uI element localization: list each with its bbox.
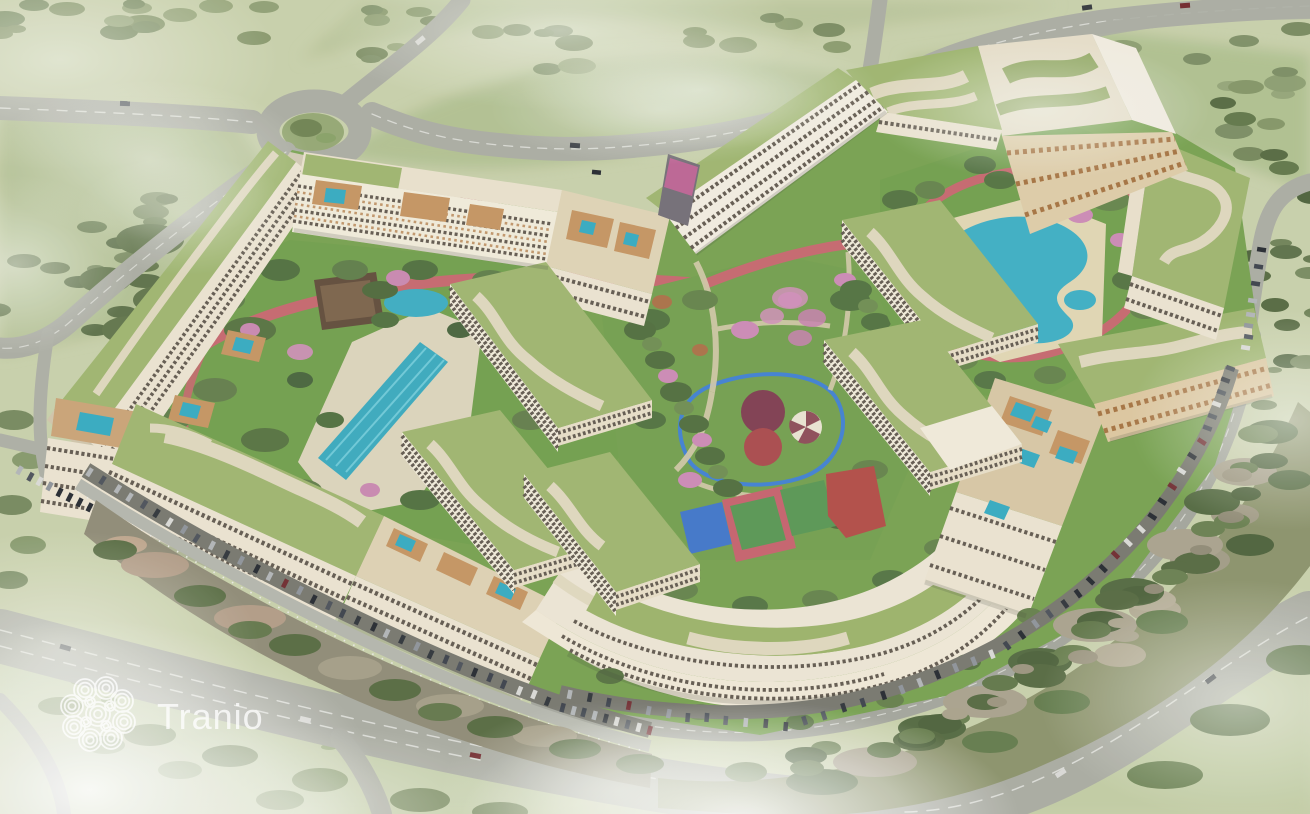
svg-text:Tranio: Tranio xyxy=(157,696,264,737)
